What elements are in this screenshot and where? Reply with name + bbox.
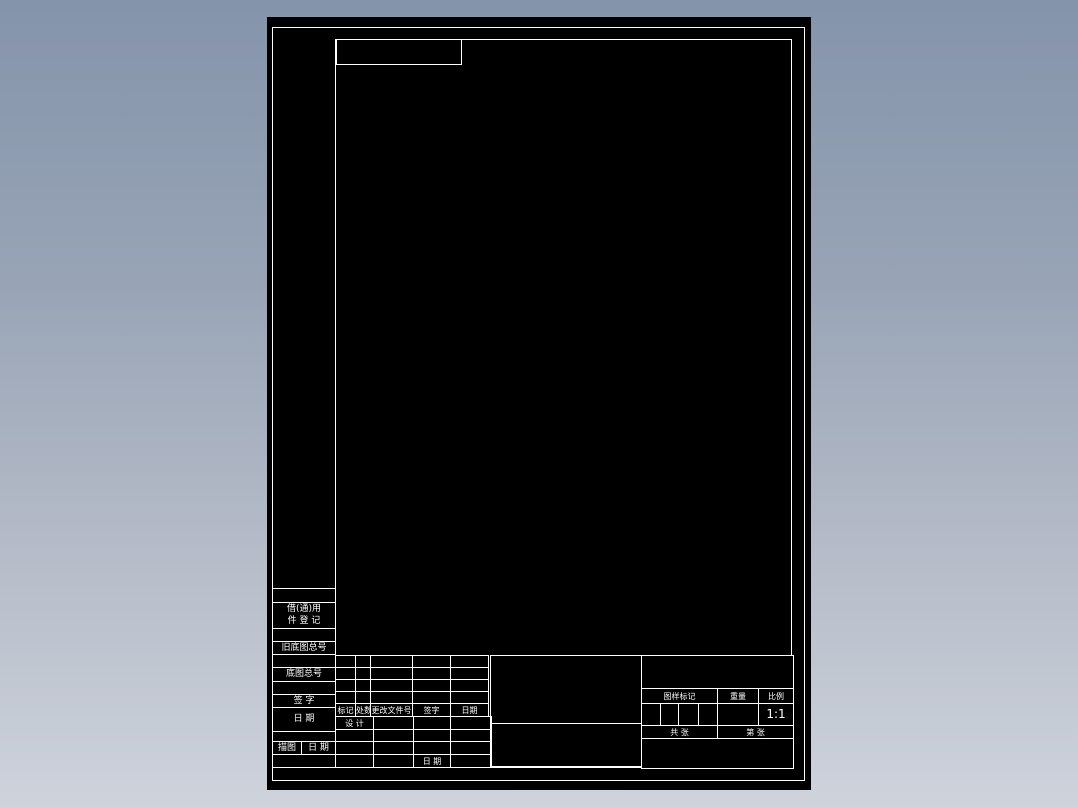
margin-empty-row-2 — [272, 654, 336, 668]
usage-register-line2: 件 登 记 — [288, 616, 321, 627]
margin-date-label: 日 期 — [294, 714, 315, 725]
margin-signature-box: 签 字 — [272, 694, 336, 708]
margin-empty-row-1 — [272, 628, 336, 642]
company-name-box — [642, 656, 794, 689]
part-code-box — [336, 39, 462, 65]
usage-register-box: 借(通)用 件 登 记 — [272, 602, 336, 629]
signature-date-label: 日 期 — [414, 755, 451, 768]
revision-row-2 — [336, 668, 489, 680]
drawing-name-divider — [491, 723, 641, 724]
margin-empty-row-3 — [272, 681, 336, 695]
scale-label: 比例 — [759, 689, 794, 704]
signature-row-3 — [336, 742, 492, 755]
old-base-drawing-no-box: 旧底图总号 — [272, 641, 336, 655]
revision-row-3 — [336, 680, 489, 692]
margin-date-box: 日 期 — [272, 707, 336, 732]
drawing-mark-label: 图样标记 — [642, 689, 718, 704]
signature-row-design: 设 计 — [336, 717, 492, 730]
design-label: 设 计 — [336, 717, 374, 730]
trace-box: 描图 — [272, 741, 302, 755]
margin-empty-row-5 — [272, 754, 336, 768]
revision-table: 标记 处数 更改文件号 签字 日期 — [335, 655, 489, 718]
title-block-bottom-box — [642, 739, 794, 769]
scale-value: 1:1 — [759, 704, 794, 726]
sheet-no-label: 第 张 — [718, 726, 794, 739]
old-base-drawing-no-label: 旧底图总号 — [281, 643, 326, 654]
base-drawing-no-box: 底图总号 — [272, 667, 336, 682]
margin-empty-strip-top — [272, 588, 336, 603]
trace-date-label: 日 期 — [308, 743, 329, 754]
margin-signature-label: 签 字 — [294, 696, 315, 707]
base-drawing-no-label: 底图总号 — [286, 669, 322, 680]
sheet-count-row: 共 张 第 张 — [642, 726, 794, 739]
trace-label: 描图 — [278, 743, 296, 754]
weight-label: 重量 — [718, 689, 759, 704]
cad-viewport: 借(通)用 件 登 记 旧底图总号 底图总号 签 字 日 期 描图 日 期 — [0, 0, 1078, 808]
revision-row-4 — [336, 692, 489, 704]
signature-row-2 — [336, 730, 492, 742]
revision-row-1 — [336, 656, 489, 668]
signature-row-date: 日 期 — [336, 755, 492, 768]
title-block-values-row: 1:1 — [642, 704, 794, 726]
sheets-total-label: 共 张 — [642, 726, 718, 739]
title-block-table: 图样标记 重量 比例 1:1 共 张 第 张 — [641, 655, 794, 769]
drawing-name-box — [490, 655, 642, 768]
trace-date-box: 日 期 — [301, 741, 336, 755]
weight-value-cell — [718, 704, 759, 726]
signature-area-table: 设 计 日 期 — [335, 716, 492, 768]
title-block-header-row: 图样标记 重量 比例 — [642, 689, 794, 704]
usage-register-line1: 借(通)用 — [287, 604, 321, 615]
